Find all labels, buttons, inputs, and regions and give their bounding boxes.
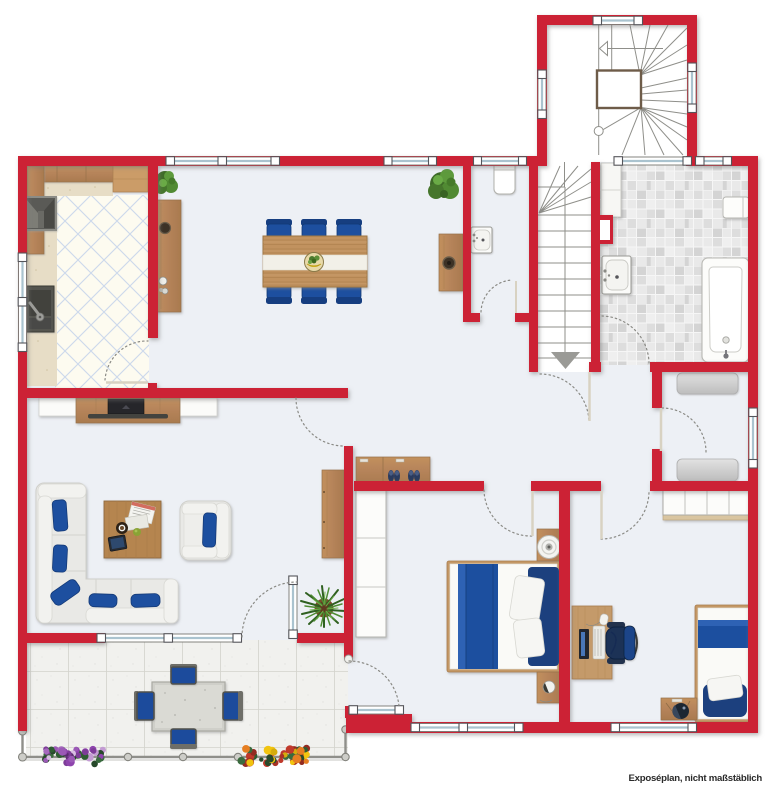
svg-text:Exposéplan, nicht maßstäblich: Exposéplan, nicht maßstäblich: [629, 773, 763, 784]
